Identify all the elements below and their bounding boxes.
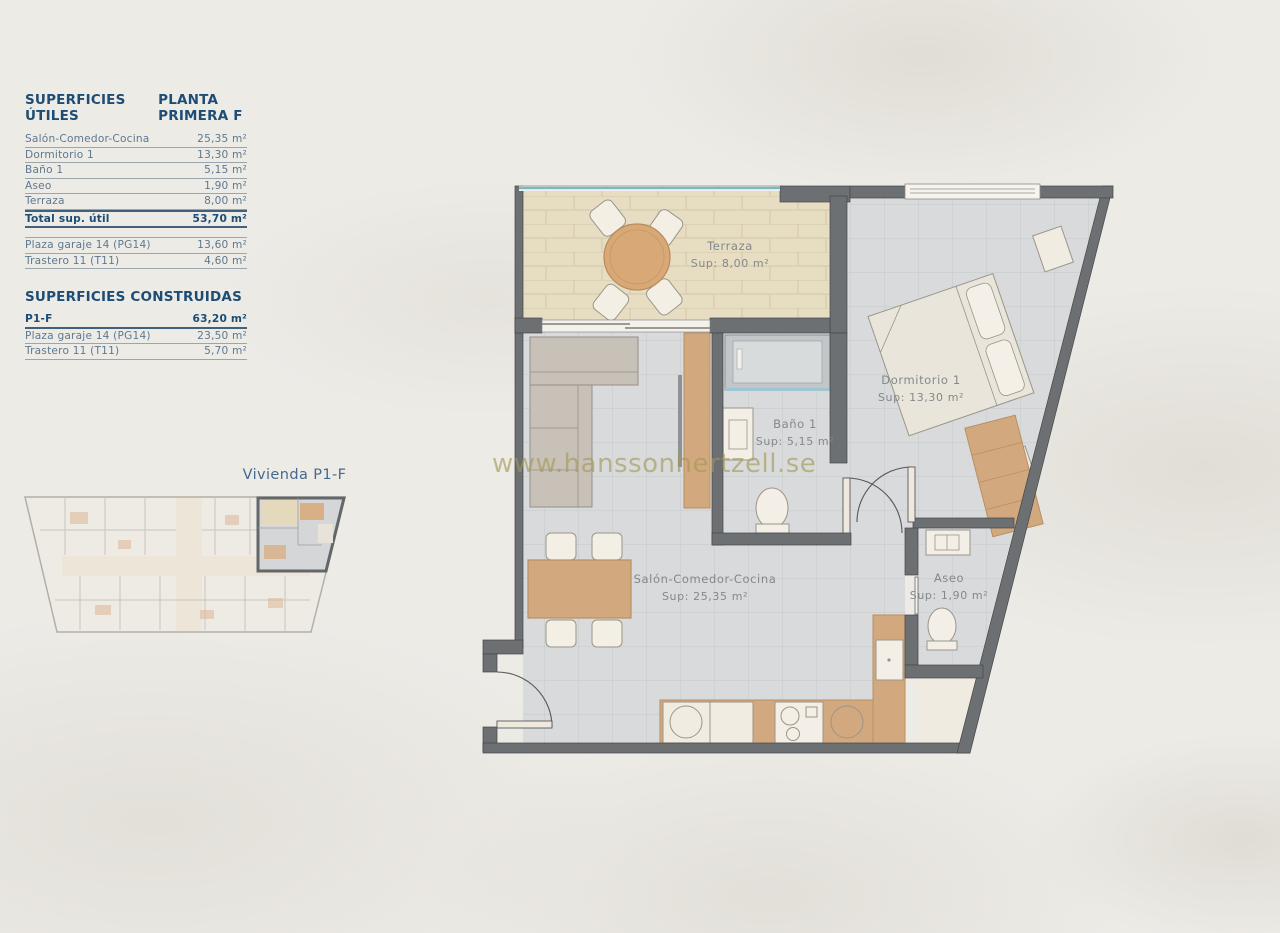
toilet (756, 488, 789, 533)
surfaces-panel: SUPERFICIES ÚTILES PLANTA PRIMERA F Saló… (25, 92, 283, 360)
terrace-glass-railing (519, 186, 780, 191)
kitchen-cabinet (710, 702, 753, 743)
terraza-floor (519, 189, 836, 330)
plan-name: PLANTA PRIMERA F (158, 92, 283, 124)
utiles-table: Salón-Comedor-Cocina 25,35 m² Dormitorio… (25, 132, 247, 228)
kitchen-sink-unit (876, 640, 903, 680)
row-label: Baño 1 (25, 165, 63, 177)
total-row: Total sup. útil 53,70 m² (25, 210, 247, 229)
bedroom-window (905, 184, 1040, 199)
sliding-glass-door (542, 320, 710, 332)
table-row: Baño 1 5,15 m² (25, 163, 247, 179)
table-row: Plaza garaje 14 (PG14) 23,50 m² (25, 329, 247, 345)
hob (775, 702, 823, 743)
row-value: 23,50 m² (197, 331, 247, 343)
aseo-toilet (927, 608, 957, 650)
row-label: Plaza garaje 14 (PG14) (25, 240, 151, 252)
row-label: Dormitorio 1 (25, 150, 94, 162)
row-value: 25,35 m² (197, 134, 247, 146)
row-value: 5,15 m² (204, 165, 247, 177)
row-label: Terraza (25, 196, 65, 208)
washing-machine (663, 702, 710, 743)
row-label: Trastero 11 (T11) (25, 256, 119, 268)
construidas-title: SUPERFICIES CONSTRUIDAS (25, 289, 283, 305)
utiles-title: SUPERFICIES ÚTILES (25, 92, 158, 124)
table-row: Plaza garaje 14 (PG14) 13,60 m² (25, 238, 247, 254)
table-row: Terraza 8,00 m² (25, 194, 247, 210)
aseo-label: Aseo (934, 571, 964, 585)
row-value: 4,60 m² (204, 256, 247, 268)
row-label: Trastero 11 (T11) (25, 346, 119, 358)
construidas-table: P1-F 63,20 m² Plaza garaje 14 (PG14) 23,… (25, 312, 247, 360)
row-value: 13,30 m² (197, 150, 247, 162)
watermark: www.hanssonhertzell.se (492, 449, 816, 479)
brochure-page: Terraza Sup: 8,00 m² Dormitorio 1 Sup: 1… (0, 0, 1280, 933)
table-row: Trastero 11 (T11) 4,60 m² (25, 254, 247, 270)
row-label: Aseo (25, 181, 52, 193)
aseo-sink (926, 530, 970, 555)
row-value: 53,70 m² (193, 214, 247, 226)
table-row: Salón-Comedor-Cocina 25,35 m² (25, 132, 247, 148)
dormitorio-label: Dormitorio 1 (881, 373, 961, 387)
utiles-header: SUPERFICIES ÚTILES PLANTA PRIMERA F (25, 92, 283, 124)
table-row: Trastero 11 (T11) 5,70 m² (25, 344, 247, 360)
row-label: Total sup. útil (25, 214, 110, 226)
utiles-extras-table: Plaza garaje 14 (PG14) 13,60 m² Trastero… (25, 237, 247, 269)
unit-title: Vivienda P1-F (232, 467, 357, 483)
row-label: Plaza garaje 14 (PG14) (25, 331, 151, 343)
row-label: Salón-Comedor-Cocina (25, 134, 149, 146)
row-value: 1,90 m² (204, 181, 247, 193)
overview-plan (25, 497, 345, 632)
table-row: P1-F 63,20 m² (25, 312, 247, 329)
aseo-sup: Sup: 1,90 m² (910, 589, 988, 602)
shower (725, 335, 830, 391)
row-value: 13,60 m² (197, 240, 247, 252)
row-value: 63,20 m² (193, 314, 247, 326)
row-value: 8,00 m² (204, 196, 247, 208)
terraza-label: Terraza (706, 239, 753, 253)
row-label: P1-F (25, 314, 53, 326)
terraza-sup: Sup: 8,00 m² (691, 257, 769, 270)
table-row: Aseo 1,90 m² (25, 179, 247, 195)
dormitorio-sup: Sup: 13,30 m² (878, 391, 964, 404)
table-row: Dormitorio 1 13,30 m² (25, 148, 247, 164)
salon-label: Salón-Comedor-Cocina (634, 572, 777, 586)
salon-sup: Sup: 25,35 m² (662, 590, 748, 603)
row-value: 5,70 m² (204, 346, 247, 358)
bano-label: Baño 1 (773, 417, 817, 431)
bano-sup: Sup: 5,15 m² (756, 435, 834, 448)
overview-highlighted-unit (258, 498, 344, 571)
